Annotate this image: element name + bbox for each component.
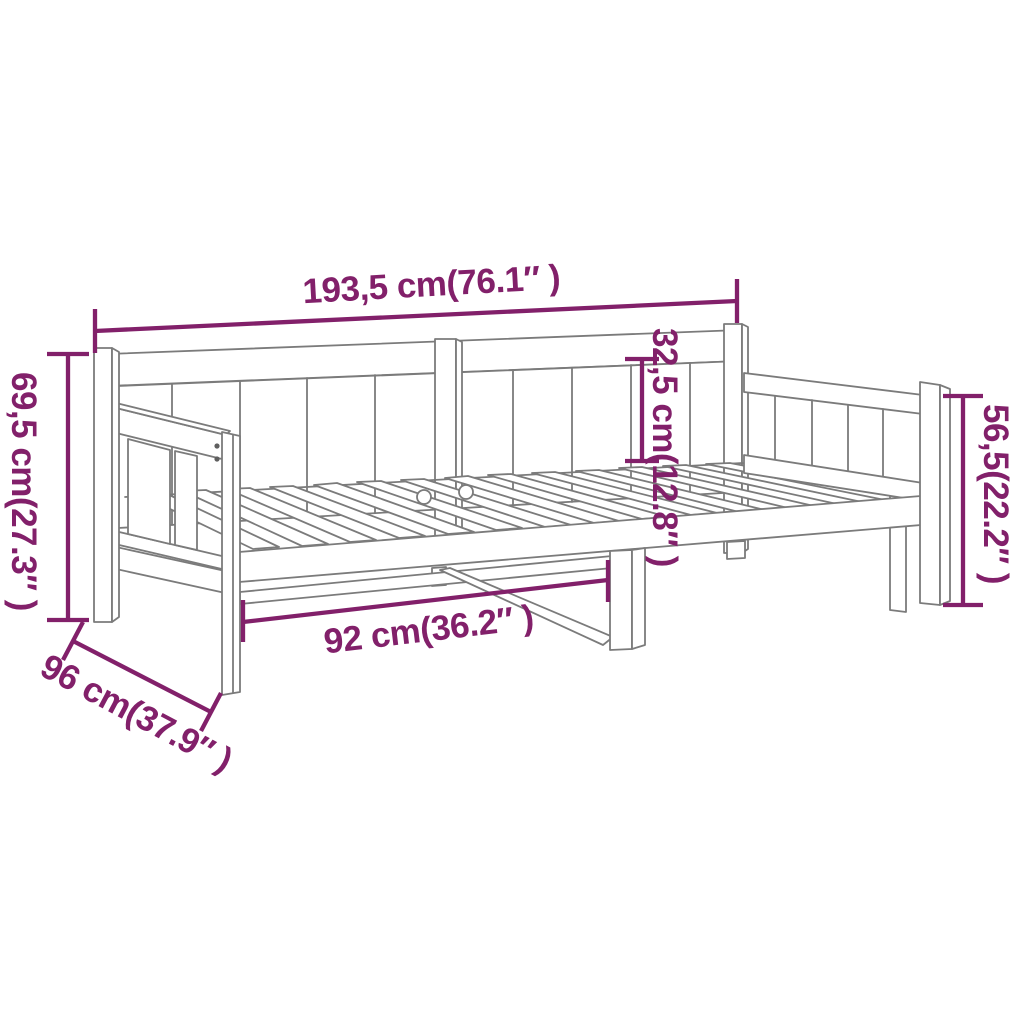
dowel-pin: [417, 490, 431, 504]
dimension-depth: 96 cm(37.9″ ): [34, 622, 238, 780]
right-armrest-top-rail: [744, 373, 923, 414]
right-front-leg: [920, 382, 940, 605]
screw: [214, 443, 219, 448]
dimension-label-height-left: 69,5 cm(27.3″ ): [4, 372, 43, 611]
dowel-pin: [459, 485, 473, 499]
dimension-height-left: 69,5 cm(27.3″ ): [4, 354, 89, 620]
left-armrest-slat: [175, 451, 197, 550]
back-left-post: [94, 348, 112, 622]
screw: [214, 456, 219, 461]
back-left-post-side: [112, 348, 119, 622]
dimension-line: [95, 301, 737, 331]
middle-front-leg: [610, 550, 632, 650]
right-front-leg-side: [940, 385, 950, 605]
middle-front-leg-side: [632, 548, 645, 649]
dimension-label-total-width: 193,5 cm(76.1″ ): [302, 258, 562, 311]
daybed-dimension-diagram: 193,5 cm(76.1″ ) 69,5 cm(27.3″ ) 32,5 cm…: [0, 0, 1024, 1024]
dimension-tick: [201, 693, 221, 731]
dimension-label-backrest-height: 32,5 cm(12.8″ ): [645, 328, 684, 567]
dimension-height-right: 56,5(22.2″ ): [943, 396, 1015, 605]
dimension-label-height-right: 56,5(22.2″ ): [976, 404, 1015, 584]
support-block: [727, 541, 745, 559]
right-armrest-bottom-rail: [744, 455, 923, 501]
front-left-leg: [222, 432, 240, 695]
daybed-drawing: [94, 324, 950, 695]
left-armrest-slat: [128, 439, 170, 544]
right-armrest: [744, 373, 923, 612]
